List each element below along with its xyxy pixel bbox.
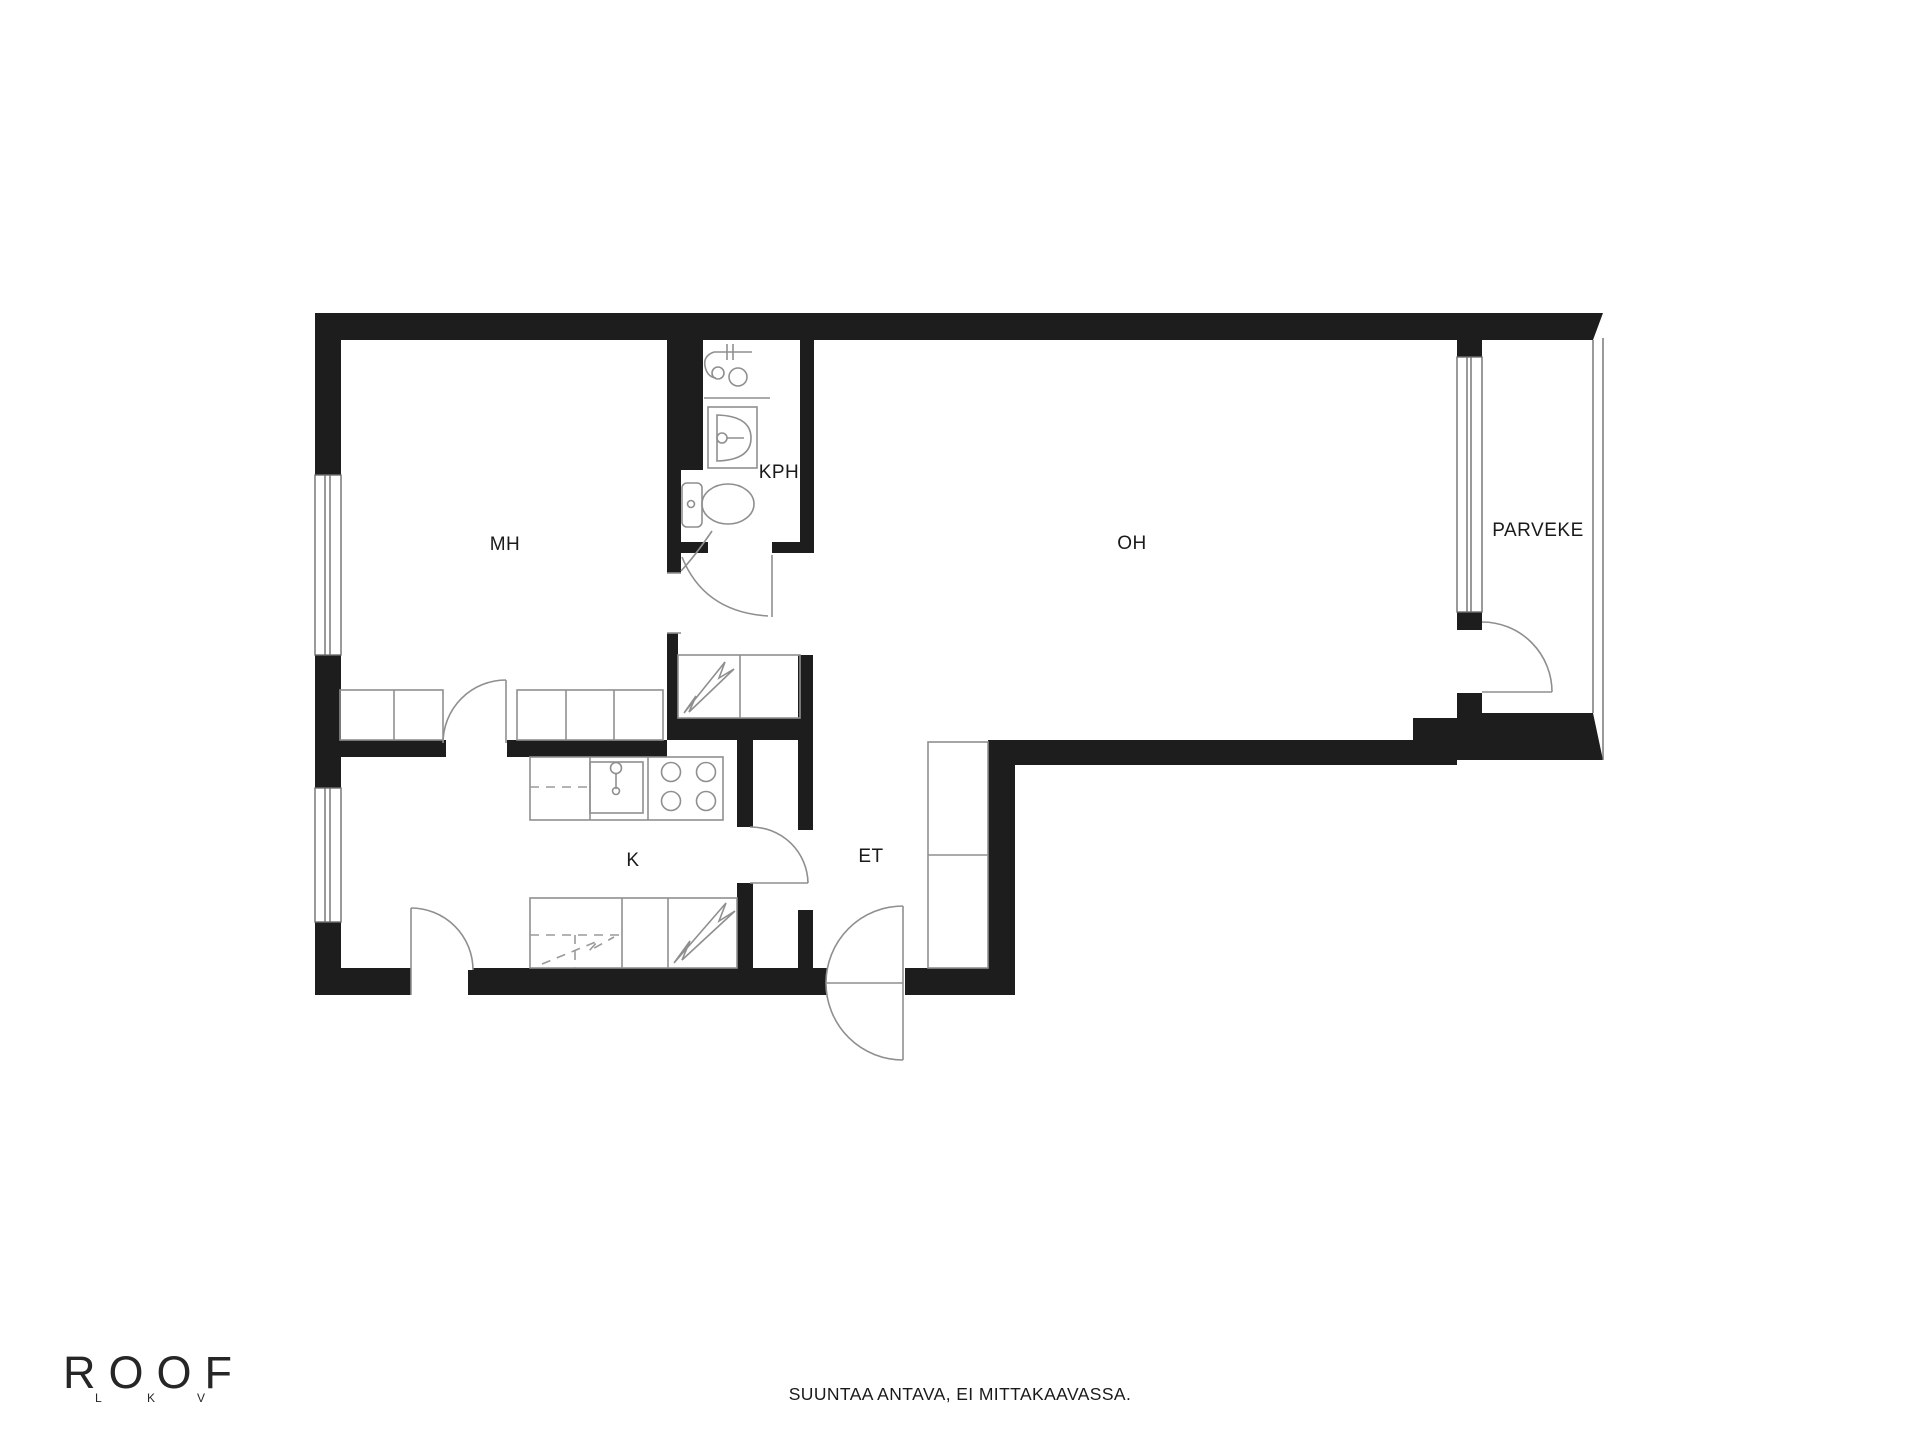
- balcony-railing-icon: [1593, 338, 1603, 760]
- windows-layer: [315, 338, 1603, 922]
- lightning-bolt-icon-counter: [674, 903, 735, 963]
- kitchen-counter-icon: [530, 757, 723, 820]
- window-icon-balcony: [1457, 357, 1482, 612]
- closet-icon-et: [928, 742, 988, 968]
- wardrobe-icon-mh-right: [517, 690, 663, 740]
- door-swing-icon-entry: [826, 906, 903, 1060]
- toilet-icon: [682, 483, 754, 527]
- shower-mixer-icon: [705, 344, 752, 386]
- room-label-parveke: PARVEKE: [1492, 520, 1584, 541]
- logo-subtext-l: L: [95, 1391, 102, 1405]
- floor-plan-drawing: MH KPH OH PARVEKE K ET ROOF L K V SUUNTA…: [0, 0, 1920, 1440]
- logo-subtext-v: V: [197, 1391, 205, 1405]
- brand-logo: ROOF L K V: [63, 1347, 245, 1405]
- room-label-et: ET: [858, 846, 883, 867]
- room-label-oh: OH: [1117, 533, 1147, 554]
- door-swing-icon-k-et: [750, 827, 808, 883]
- washbasin-icon: [708, 407, 757, 468]
- kitchen-lower-counter-icon: [530, 898, 737, 968]
- walls-layer: [315, 313, 1603, 995]
- room-label-k: K: [626, 850, 639, 871]
- labels-layer: MH KPH OH PARVEKE K ET: [490, 462, 1584, 871]
- room-label-mh: MH: [490, 534, 521, 555]
- furniture-layer: [340, 344, 988, 968]
- door-swing-icon-mh: [443, 680, 506, 743]
- door-swing-icon-balcony: [1482, 622, 1552, 692]
- logo-subtext-k: K: [147, 1391, 155, 1405]
- stove-icon: [662, 763, 716, 811]
- dishwasher-dashed-icon: [530, 935, 622, 968]
- room-label-kph: KPH: [759, 462, 800, 483]
- wardrobe-icon-mh-left: [340, 690, 443, 740]
- disclaimer-text: SUUNTAA ANTAVA, EI MITTAKAAVASSA.: [789, 1384, 1132, 1404]
- window-icon-mh: [315, 475, 341, 655]
- electrical-cabinet-icon: [678, 655, 800, 718]
- floor-plan-page: MH KPH OH PARVEKE K ET ROOF L K V SUUNTA…: [0, 0, 1920, 1440]
- window-icon-k: [315, 788, 341, 922]
- door-swing-icon-k-bottom: [411, 908, 473, 995]
- kitchen-sink-icon: [590, 762, 643, 813]
- lightning-bolt-icon-cabinet: [684, 662, 734, 713]
